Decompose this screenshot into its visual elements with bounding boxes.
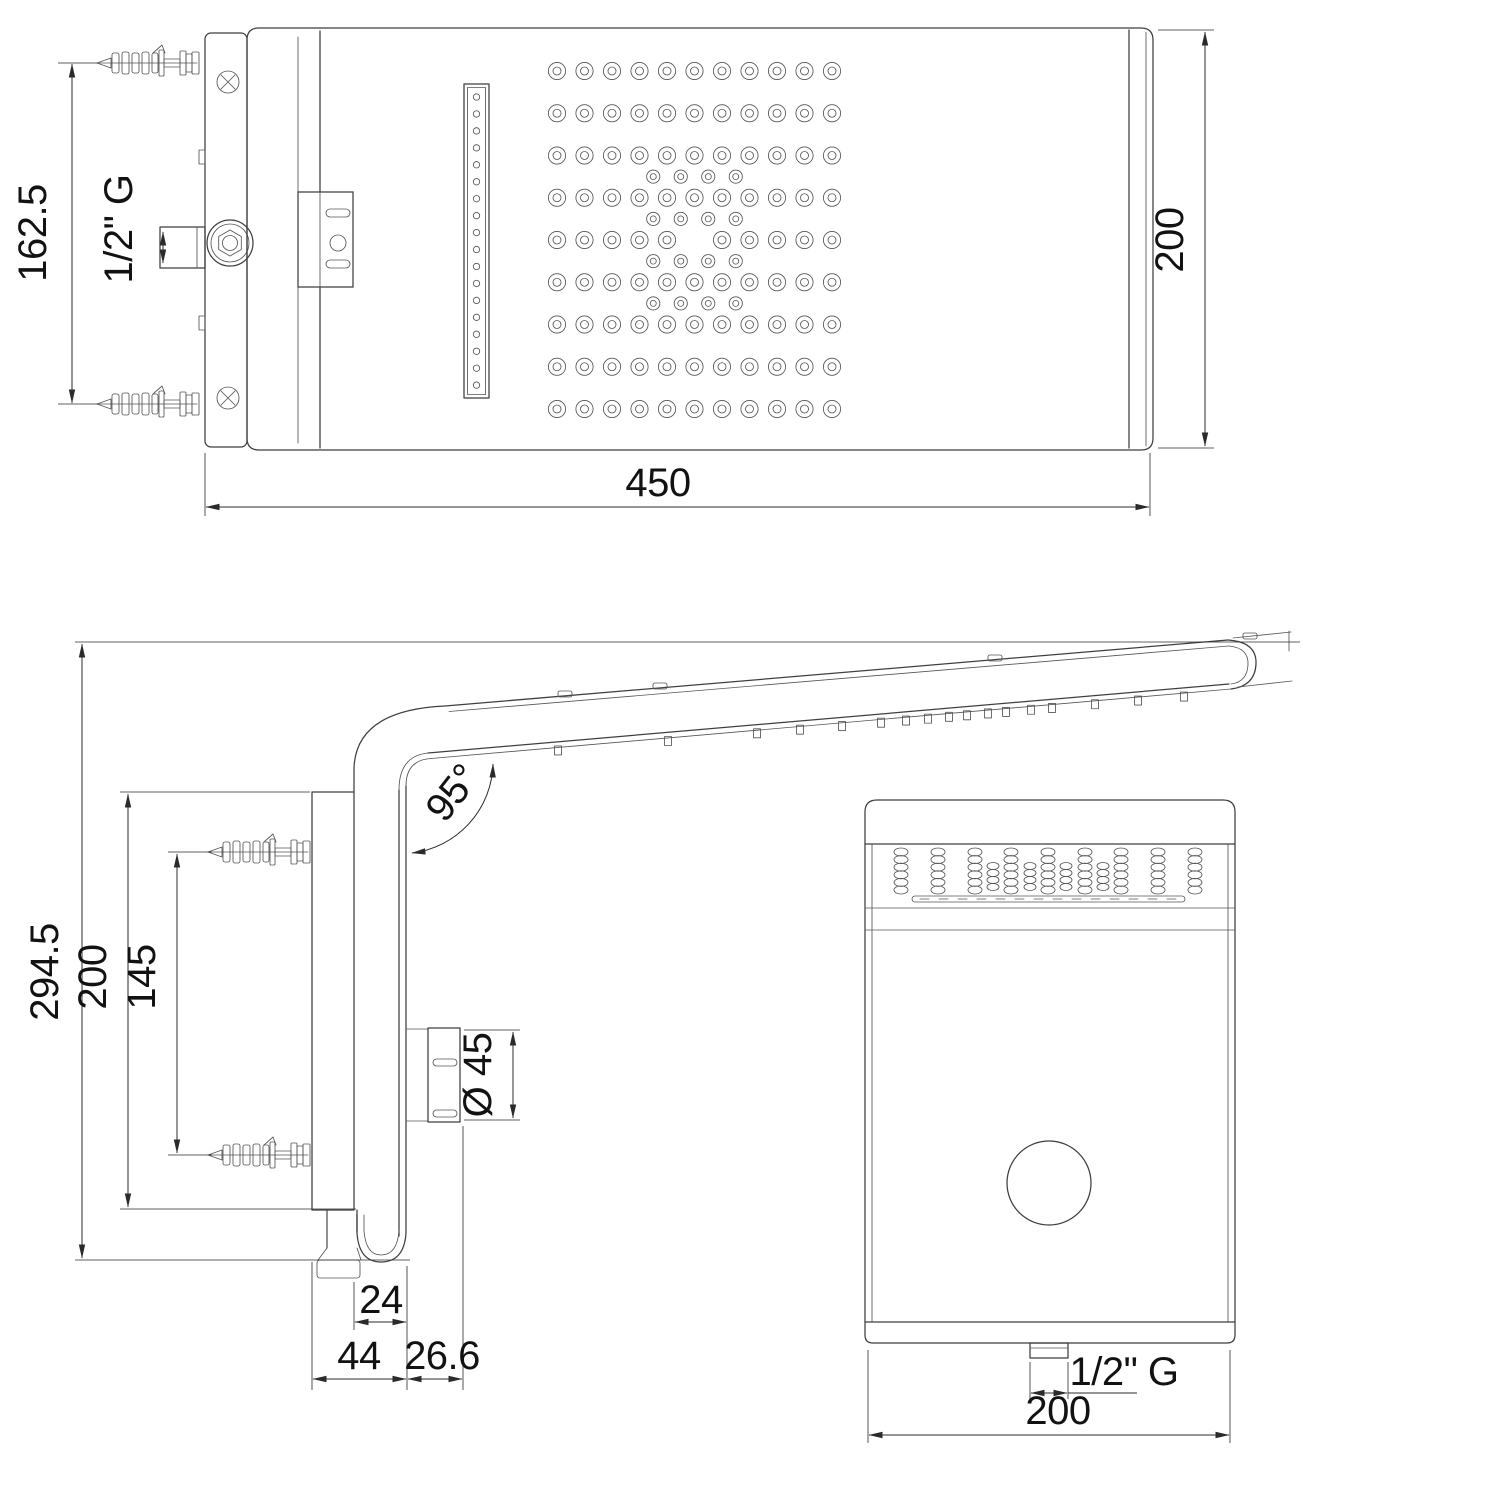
dim-26-6: 26.6 [404, 1126, 480, 1390]
top-view: 162.5 1/2" G 450 200 [11, 28, 1214, 516]
dim-label-44: 44 [337, 1334, 381, 1378]
side-drain [317, 1210, 406, 1278]
dim-label-inlet-top: 1/2" G [97, 174, 141, 283]
dim-label-162-5: 162.5 [11, 184, 55, 282]
top-mounting-bracket [298, 192, 353, 287]
dim-200-top: 200 [1148, 30, 1214, 448]
dim-450: 450 [205, 453, 1150, 516]
dim-angle-95: 95° [412, 756, 493, 853]
front-waterfall-slot [912, 896, 1185, 902]
dim-label-26-6: 26.6 [404, 1334, 480, 1378]
side-arm-profile [354, 631, 1292, 1236]
dim-200-side: 200 [71, 792, 356, 1209]
top-inlet-connector [207, 220, 253, 266]
side-connector-45 [406, 1028, 460, 1122]
dim-label-24: 24 [359, 1278, 403, 1322]
dim-145: 145 [120, 852, 212, 1155]
front-outlet-stub [1030, 1343, 1068, 1358]
top-waterfall-slot [464, 84, 489, 398]
dim-label-200-side: 200 [71, 944, 115, 1009]
dim-label-200-top: 200 [1148, 207, 1192, 272]
dim-label-outlet-front: 1/2" G [1069, 1350, 1178, 1394]
dim-162-5: 162.5 [11, 63, 98, 404]
dim-label-45: Ø 45 [456, 1033, 500, 1118]
dim-294-5: 294.5 [23, 642, 1300, 1260]
side-wall-plate [312, 792, 354, 1210]
top-inlet-stub [160, 227, 205, 268]
dim-inlet-top: 1/2" G [97, 174, 163, 283]
side-nozzle-ticks [555, 692, 1188, 755]
front-control-knob [1007, 1141, 1091, 1225]
side-view: 95° 294.5 200 145 Ø 45 [23, 631, 1300, 1390]
dim-label-145: 145 [120, 944, 164, 1009]
front-nozzle-stacks [894, 848, 1202, 894]
technical-drawing-page: 162.5 1/2" G 450 200 [0, 0, 1500, 1500]
dim-diameter-45: Ø 45 [456, 1030, 520, 1120]
shower-head-drawing: 162.5 1/2" G 450 200 [0, 0, 1500, 1500]
dim-label-95: 95° [417, 756, 488, 830]
dim-label-200-front: 200 [1025, 1389, 1090, 1433]
dim-label-450: 450 [625, 461, 690, 505]
front-view: 1/2" G 200 [865, 800, 1235, 1443]
front-body-outline [865, 800, 1235, 1343]
dim-label-294-5: 294.5 [23, 923, 67, 1021]
top-head-body [247, 28, 1153, 450]
top-nozzle-grid [548, 62, 840, 417]
